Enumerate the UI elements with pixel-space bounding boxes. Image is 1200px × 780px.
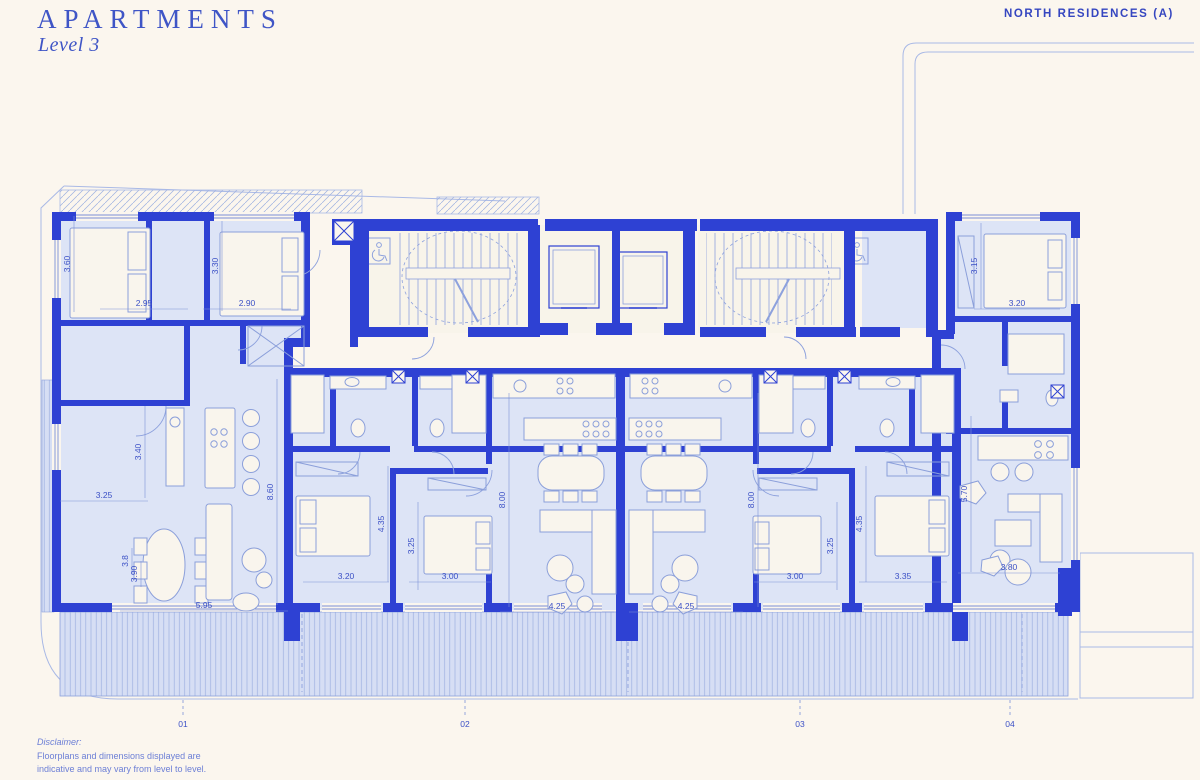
dimension-label: 2.95: [136, 298, 153, 308]
dimension-label: 3.30: [210, 257, 220, 274]
dimension-label: 3.20: [1009, 298, 1026, 308]
dimension-label: 5.95: [196, 600, 213, 610]
dimension-label: 3.00: [442, 571, 459, 581]
floor-plan-svg: 3.602.953.302.903.403.258.603.83.905.954…: [0, 0, 1200, 780]
dimension-label: 4.25: [549, 601, 566, 611]
dimension-label: 8.60: [265, 483, 275, 500]
dimension-label: 3.60: [62, 255, 72, 272]
dimension-label: 3.25: [406, 537, 416, 554]
dimension-label: 3.00: [787, 571, 804, 581]
unit-number-label: 02: [460, 719, 470, 729]
disclaimer: Disclaimer: Floorplans and dimensions di…: [37, 736, 206, 777]
unit-number-label: 01: [178, 719, 188, 729]
unit-markers: 01020304: [178, 700, 1015, 729]
dimension-label: 3.80: [1001, 562, 1018, 572]
dimension-label: 3.8: [120, 555, 130, 567]
dimension-label: 5.70: [959, 485, 969, 502]
dimension-label: 3.35: [895, 571, 912, 581]
stairwell-right: [706, 231, 840, 325]
disclaimer-label: Disclaimer:: [37, 736, 206, 750]
dimension-label: 4.25: [678, 601, 695, 611]
dimension-label: 3.20: [338, 571, 355, 581]
dimension-label: 4.35: [376, 515, 386, 532]
dimension-label: 2.90: [239, 298, 256, 308]
dimension-label: 8.00: [746, 491, 756, 508]
unit-number-label: 04: [1005, 719, 1015, 729]
dimension-label: 3.40: [133, 443, 143, 460]
dimension-label: 3.15: [969, 257, 979, 274]
stairwell-left: [396, 231, 522, 325]
dimension-label: 4.35: [854, 515, 864, 532]
awning-hatch: [60, 190, 539, 214]
dimension-label: 3.90: [129, 565, 139, 582]
dimension-label: 3.25: [96, 490, 113, 500]
disclaimer-line: indicative and may vary from level to le…: [37, 763, 206, 777]
dimension-label: 3.25: [825, 537, 835, 554]
dimension-label: 8.00: [497, 491, 507, 508]
unit-number-label: 03: [795, 719, 805, 729]
disclaimer-line: Floorplans and dimensions displayed are: [37, 750, 206, 764]
